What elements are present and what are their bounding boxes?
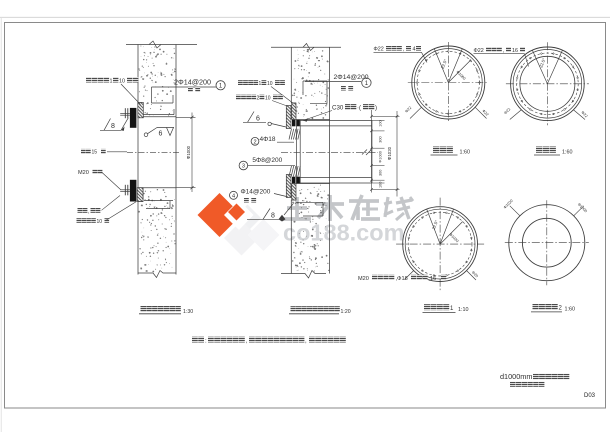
svg-text:,16: ,16	[429, 276, 437, 282]
svg-text:C30: C30	[332, 105, 344, 112]
svg-text:1:20: 1:20	[341, 309, 351, 315]
svg-text:Φ1000: Φ1000	[186, 145, 191, 159]
svg-text:4: 4	[232, 194, 235, 200]
svg-text:M20: M20	[358, 276, 369, 282]
svg-text:10: 10	[267, 81, 273, 87]
svg-text:8: 8	[111, 123, 115, 130]
svg-text:·(: ·(	[357, 106, 361, 112]
svg-text:Φ22: Φ22	[474, 48, 484, 54]
svg-text:2: 2	[257, 96, 260, 102]
svg-text:1:60: 1:60	[562, 150, 573, 156]
svg-text:300: 300	[378, 136, 382, 142]
svg-text:1:60: 1:60	[460, 150, 471, 156]
svg-text:8: 8	[271, 212, 275, 219]
svg-text:10: 10	[265, 96, 271, 102]
svg-text:16: 16	[512, 48, 518, 54]
svg-text:1: 1	[259, 81, 262, 87]
svg-text:2Φ14@200: 2Φ14@200	[334, 74, 369, 81]
svg-text:3: 3	[242, 164, 245, 170]
svg-text:10: 10	[119, 79, 125, 85]
svg-text:Φ1020: Φ1020	[387, 146, 392, 160]
svg-text:300: 300	[378, 170, 382, 176]
svg-text:4: 4	[413, 47, 416, 53]
svg-text:100: 100	[378, 120, 382, 126]
svg-text:4Φ18: 4Φ18	[260, 136, 276, 143]
svg-text:10: 10	[97, 219, 103, 225]
svg-text:100: 100	[378, 182, 382, 188]
svg-text:5Φ8@200: 5Φ8@200	[252, 157, 282, 164]
svg-text:d1000mm: d1000mm	[500, 372, 532, 381]
svg-text:): )	[375, 106, 377, 112]
svg-text:Φ22: Φ22	[374, 47, 384, 53]
svg-text:1: 1	[110, 79, 113, 85]
svg-text:D03: D03	[584, 393, 596, 399]
svg-text:1:60: 1:60	[565, 307, 576, 313]
svg-text:co188.com: co188.com	[283, 220, 404, 246]
svg-text:6: 6	[256, 116, 260, 123]
svg-text:6: 6	[159, 131, 163, 138]
svg-text:15: 15	[92, 150, 98, 156]
svg-text:,: ,	[88, 209, 89, 215]
svg-text:Φ14@200: Φ14@200	[241, 188, 271, 195]
svg-text:2Φ14@200: 2Φ14@200	[174, 77, 211, 86]
svg-text:M20: M20	[78, 170, 89, 176]
svg-text:1:30: 1:30	[183, 309, 193, 315]
svg-text:2: 2	[253, 139, 256, 145]
svg-text:Φ1000: Φ1000	[378, 151, 382, 162]
svg-text:,Φ18: ,Φ18	[396, 276, 408, 282]
svg-text:1:10: 1:10	[458, 307, 469, 313]
